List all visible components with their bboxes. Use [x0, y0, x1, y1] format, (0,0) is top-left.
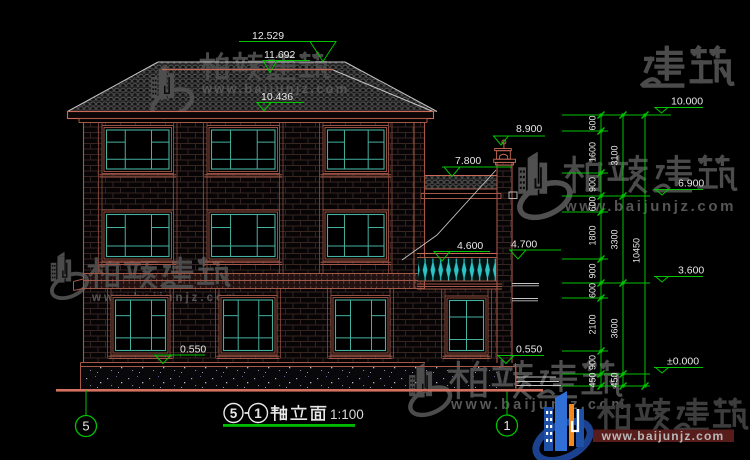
svg-text:10450: 10450: [632, 238, 642, 263]
svg-text:0.550: 0.550: [516, 344, 542, 356]
svg-text:0.550: 0.550: [180, 344, 206, 356]
svg-text:11.692: 11.692: [264, 49, 295, 61]
svg-text:1: 1: [503, 418, 510, 433]
svg-text:450: 450: [588, 372, 598, 387]
svg-text:900: 900: [588, 263, 598, 278]
svg-text:6.900: 6.900: [678, 178, 704, 190]
svg-text:3600: 3600: [610, 318, 620, 338]
svg-text:2100: 2100: [588, 314, 598, 334]
svg-text:900: 900: [588, 355, 598, 370]
svg-text:3300: 3300: [610, 229, 620, 249]
svg-text:600: 600: [588, 283, 598, 298]
svg-text:3100: 3100: [610, 145, 620, 165]
svg-text:600: 600: [588, 196, 598, 211]
svg-text:www.baijunjz.com: www.baijunjz.com: [601, 429, 725, 443]
svg-text:1600: 1600: [588, 142, 598, 162]
svg-text:±0.000: ±0.000: [667, 356, 699, 368]
svg-text:4.600: 4.600: [457, 240, 483, 252]
svg-text:7.800: 7.800: [455, 155, 481, 167]
svg-text:1: 1: [254, 406, 262, 421]
svg-text:5: 5: [82, 419, 89, 434]
svg-text:4.700: 4.700: [511, 239, 537, 251]
svg-text:900: 900: [588, 177, 598, 192]
svg-text:5: 5: [230, 406, 238, 421]
svg-text:3.600: 3.600: [678, 265, 704, 277]
svg-text:450: 450: [610, 372, 620, 387]
svg-text:8.900: 8.900: [516, 123, 542, 135]
svg-text:10.000: 10.000: [671, 96, 703, 108]
svg-text:www.baijunjz.com: www.baijunjz.com: [450, 397, 627, 413]
svg-text:1800: 1800: [588, 225, 598, 245]
svg-text:12.529: 12.529: [252, 30, 284, 42]
svg-text:600: 600: [588, 115, 598, 130]
svg-text:1:100: 1:100: [330, 407, 364, 422]
svg-text:10.436: 10.436: [261, 91, 293, 103]
